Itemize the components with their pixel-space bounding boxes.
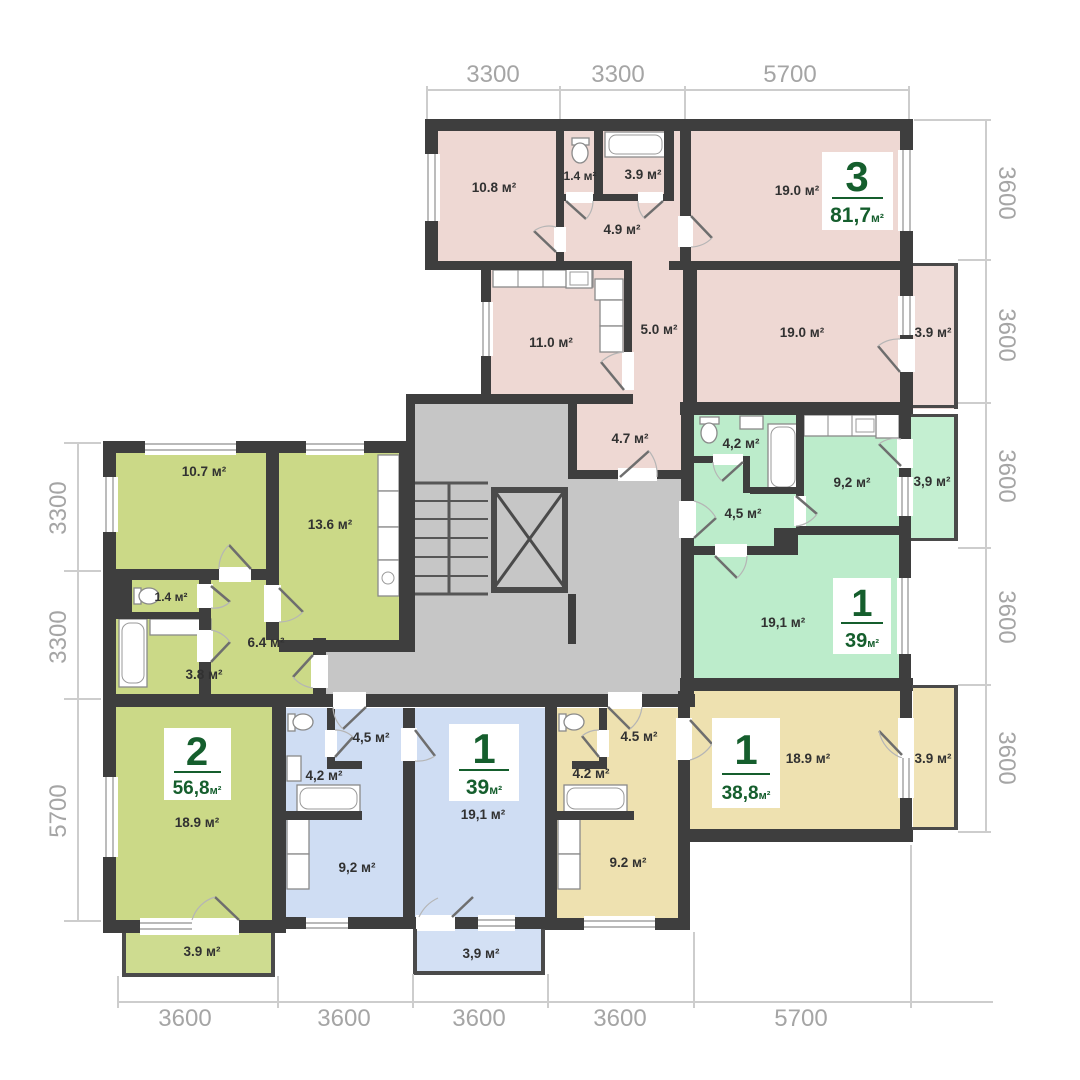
svg-text:5.0 м²: 5.0 м² [641, 322, 679, 337]
svg-text:3300: 3300 [466, 61, 519, 88]
svg-text:1.4 м²: 1.4 м² [155, 590, 188, 604]
svg-text:1.4 м²: 1.4 м² [564, 169, 597, 183]
svg-text:3300: 3300 [45, 481, 72, 534]
svg-text:3.9 м²: 3.9 м² [184, 944, 222, 959]
svg-text:3.9 м²: 3.9 м² [915, 325, 953, 340]
svg-text:4.2 м²: 4.2 м² [573, 766, 611, 781]
svg-text:4,2 м²: 4,2 м² [723, 436, 761, 451]
svg-text:5700: 5700 [45, 784, 72, 837]
svg-text:9,2 м²: 9,2 м² [834, 475, 872, 490]
svg-text:1: 1 [734, 726, 757, 773]
svg-text:4.5 м²: 4.5 м² [621, 729, 659, 744]
svg-text:3600: 3600 [993, 731, 1020, 784]
svg-text:3600: 3600 [993, 166, 1020, 219]
svg-text:3300: 3300 [591, 61, 644, 88]
svg-text:10.8 м²: 10.8 м² [472, 180, 517, 195]
svg-text:3: 3 [845, 153, 868, 200]
svg-text:3.9 м²: 3.9 м² [915, 751, 953, 766]
svg-text:2: 2 [186, 730, 208, 774]
svg-text:3,9 м²: 3,9 м² [463, 946, 501, 961]
svg-text:4.9 м²: 4.9 м² [604, 222, 642, 237]
svg-text:4,5 м²: 4,5 м² [353, 730, 391, 745]
svg-text:13.6 м²: 13.6 м² [308, 517, 353, 532]
svg-text:3600: 3600 [593, 1005, 646, 1032]
svg-text:3600: 3600 [993, 308, 1020, 361]
svg-text:5700: 5700 [774, 1005, 827, 1032]
svg-text:3600: 3600 [158, 1005, 211, 1032]
svg-text:9.2 м²: 9.2 м² [610, 855, 648, 870]
svg-text:18.9 м²: 18.9 м² [786, 751, 831, 766]
svg-text:3600: 3600 [452, 1005, 505, 1032]
svg-text:4.7 м²: 4.7 м² [612, 431, 650, 446]
svg-text:3600: 3600 [993, 590, 1020, 643]
svg-text:5700: 5700 [763, 61, 816, 88]
svg-text:19,1 м²: 19,1 м² [761, 615, 806, 630]
svg-text:19.0 м²: 19.0 м² [775, 183, 820, 198]
svg-text:3300: 3300 [45, 610, 72, 663]
svg-text:3.8 м²: 3.8 м² [186, 667, 224, 682]
svg-text:4,5 м²: 4,5 м² [725, 506, 763, 521]
svg-text:3600: 3600 [317, 1005, 370, 1032]
svg-text:3600: 3600 [993, 449, 1020, 502]
svg-text:4,2 м²: 4,2 м² [306, 768, 344, 783]
svg-text:3.9 м²: 3.9 м² [625, 167, 663, 182]
svg-text:9,2 м²: 9,2 м² [339, 860, 377, 875]
svg-text:1: 1 [851, 583, 872, 625]
svg-text:1: 1 [472, 725, 495, 772]
svg-text:19,1 м²: 19,1 м² [461, 807, 506, 822]
svg-text:11.0 м²: 11.0 м² [529, 335, 573, 350]
svg-text:19.0 м²: 19.0 м² [780, 325, 825, 340]
svg-text:3,9 м²: 3,9 м² [914, 474, 952, 489]
svg-text:6.4 м²: 6.4 м² [248, 635, 286, 650]
svg-text:18.9 м²: 18.9 м² [175, 815, 220, 830]
svg-text:10.7 м²: 10.7 м² [182, 464, 227, 479]
